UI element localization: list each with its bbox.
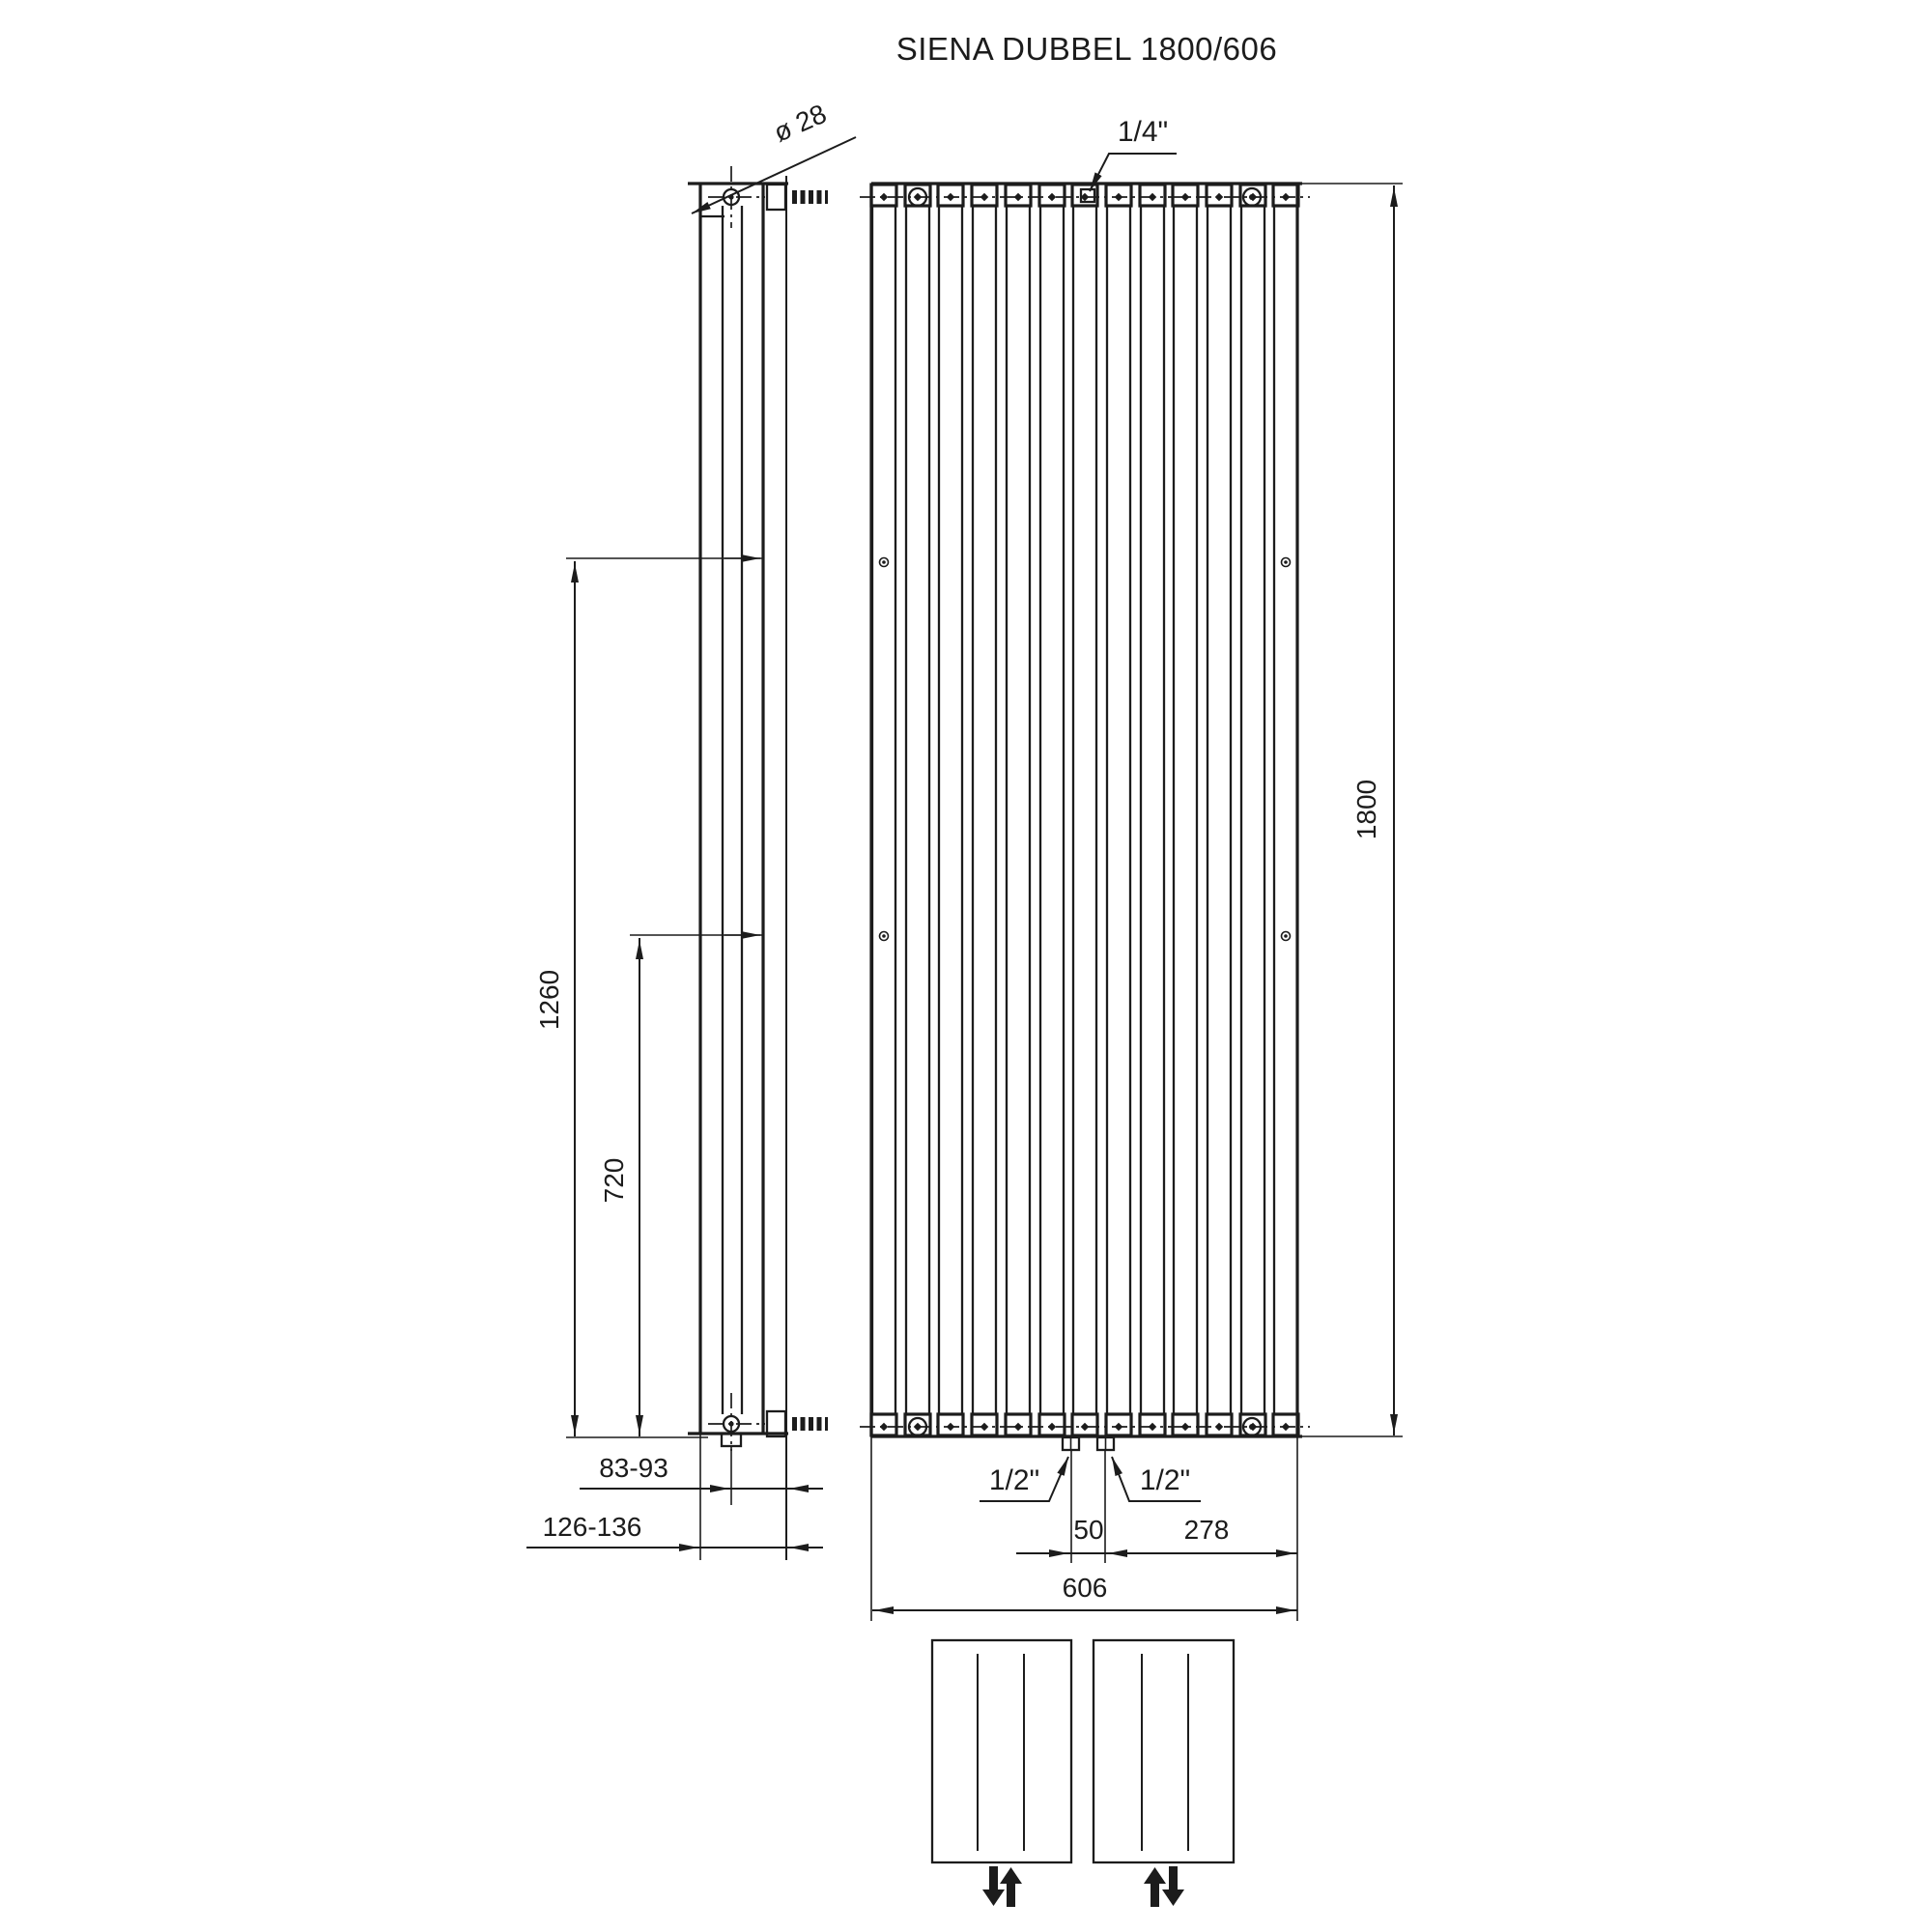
drawing-svg: SIENA DUBBEL 1800/606 xyxy=(0,0,1932,1932)
valve-stub xyxy=(1097,1437,1114,1450)
mounting-hole-icon xyxy=(880,932,889,941)
mounting-hole-icon xyxy=(1282,558,1291,567)
dimension-annotations: 1260 720 1800 83-93 126-136 50 278 606 xyxy=(526,116,1403,1621)
radiator-tube xyxy=(1072,185,1097,1435)
tube-field xyxy=(871,185,1298,1435)
dim-text-wall-front: 126-136 xyxy=(543,1512,642,1542)
radiator-tube xyxy=(1173,185,1198,1435)
radiator-tube xyxy=(1039,185,1065,1435)
radiator-tube xyxy=(1207,185,1232,1435)
front-view xyxy=(860,184,1310,1450)
dim-text-lower-bracket: 720 xyxy=(599,1158,629,1204)
dim-text-wall-axis: 83-93 xyxy=(599,1453,668,1483)
flow-up-arrow-icon xyxy=(1144,1867,1166,1907)
radiator-tube xyxy=(972,185,997,1435)
radiator-tube xyxy=(1106,185,1131,1435)
radiator-tube xyxy=(1273,185,1298,1435)
dim-text-width: 606 xyxy=(1063,1573,1108,1603)
flow-schematics xyxy=(932,1640,1234,1907)
radiator-tube xyxy=(1140,185,1165,1435)
mounting-hole-icon xyxy=(1282,932,1291,941)
valve-stub xyxy=(1063,1437,1079,1450)
radiator-tube xyxy=(871,185,896,1435)
drawing-title: SIENA DUBBEL 1800/606 xyxy=(896,31,1278,67)
dim-text-valve-spacing: 50 xyxy=(1073,1515,1103,1545)
radiator-tube xyxy=(938,185,963,1435)
diameter-leader-line xyxy=(692,137,856,213)
flow-down-arrow-icon xyxy=(1162,1866,1184,1906)
diameter-label: ø 28 xyxy=(769,99,831,148)
bottom-wall-bracket-icon xyxy=(708,1393,828,1451)
bottom-connection-label-right: 1/2" xyxy=(1140,1464,1190,1496)
radiator-tube xyxy=(1240,185,1265,1435)
technical-drawing-page: SIENA DUBBEL 1800/606 xyxy=(0,0,1932,1932)
top-connection-label: 1/4" xyxy=(1118,116,1168,148)
dim-text-upper-bracket: 1260 xyxy=(534,970,564,1030)
flow-schematic-right xyxy=(1094,1640,1234,1907)
flow-schematic-left xyxy=(932,1640,1071,1907)
radiator-tube xyxy=(905,185,930,1435)
dim-text-height: 1800 xyxy=(1351,780,1381,839)
dim-text-valve-to-edge: 278 xyxy=(1184,1515,1230,1545)
mounting-hole-icon xyxy=(880,558,889,567)
radiator-tube xyxy=(1006,185,1031,1435)
bottom-connection-label-left: 1/2" xyxy=(989,1464,1039,1496)
flow-down-arrow-icon xyxy=(982,1866,1005,1906)
side-view: ø 28 xyxy=(688,99,856,1560)
flow-up-arrow-icon xyxy=(1000,1867,1022,1907)
